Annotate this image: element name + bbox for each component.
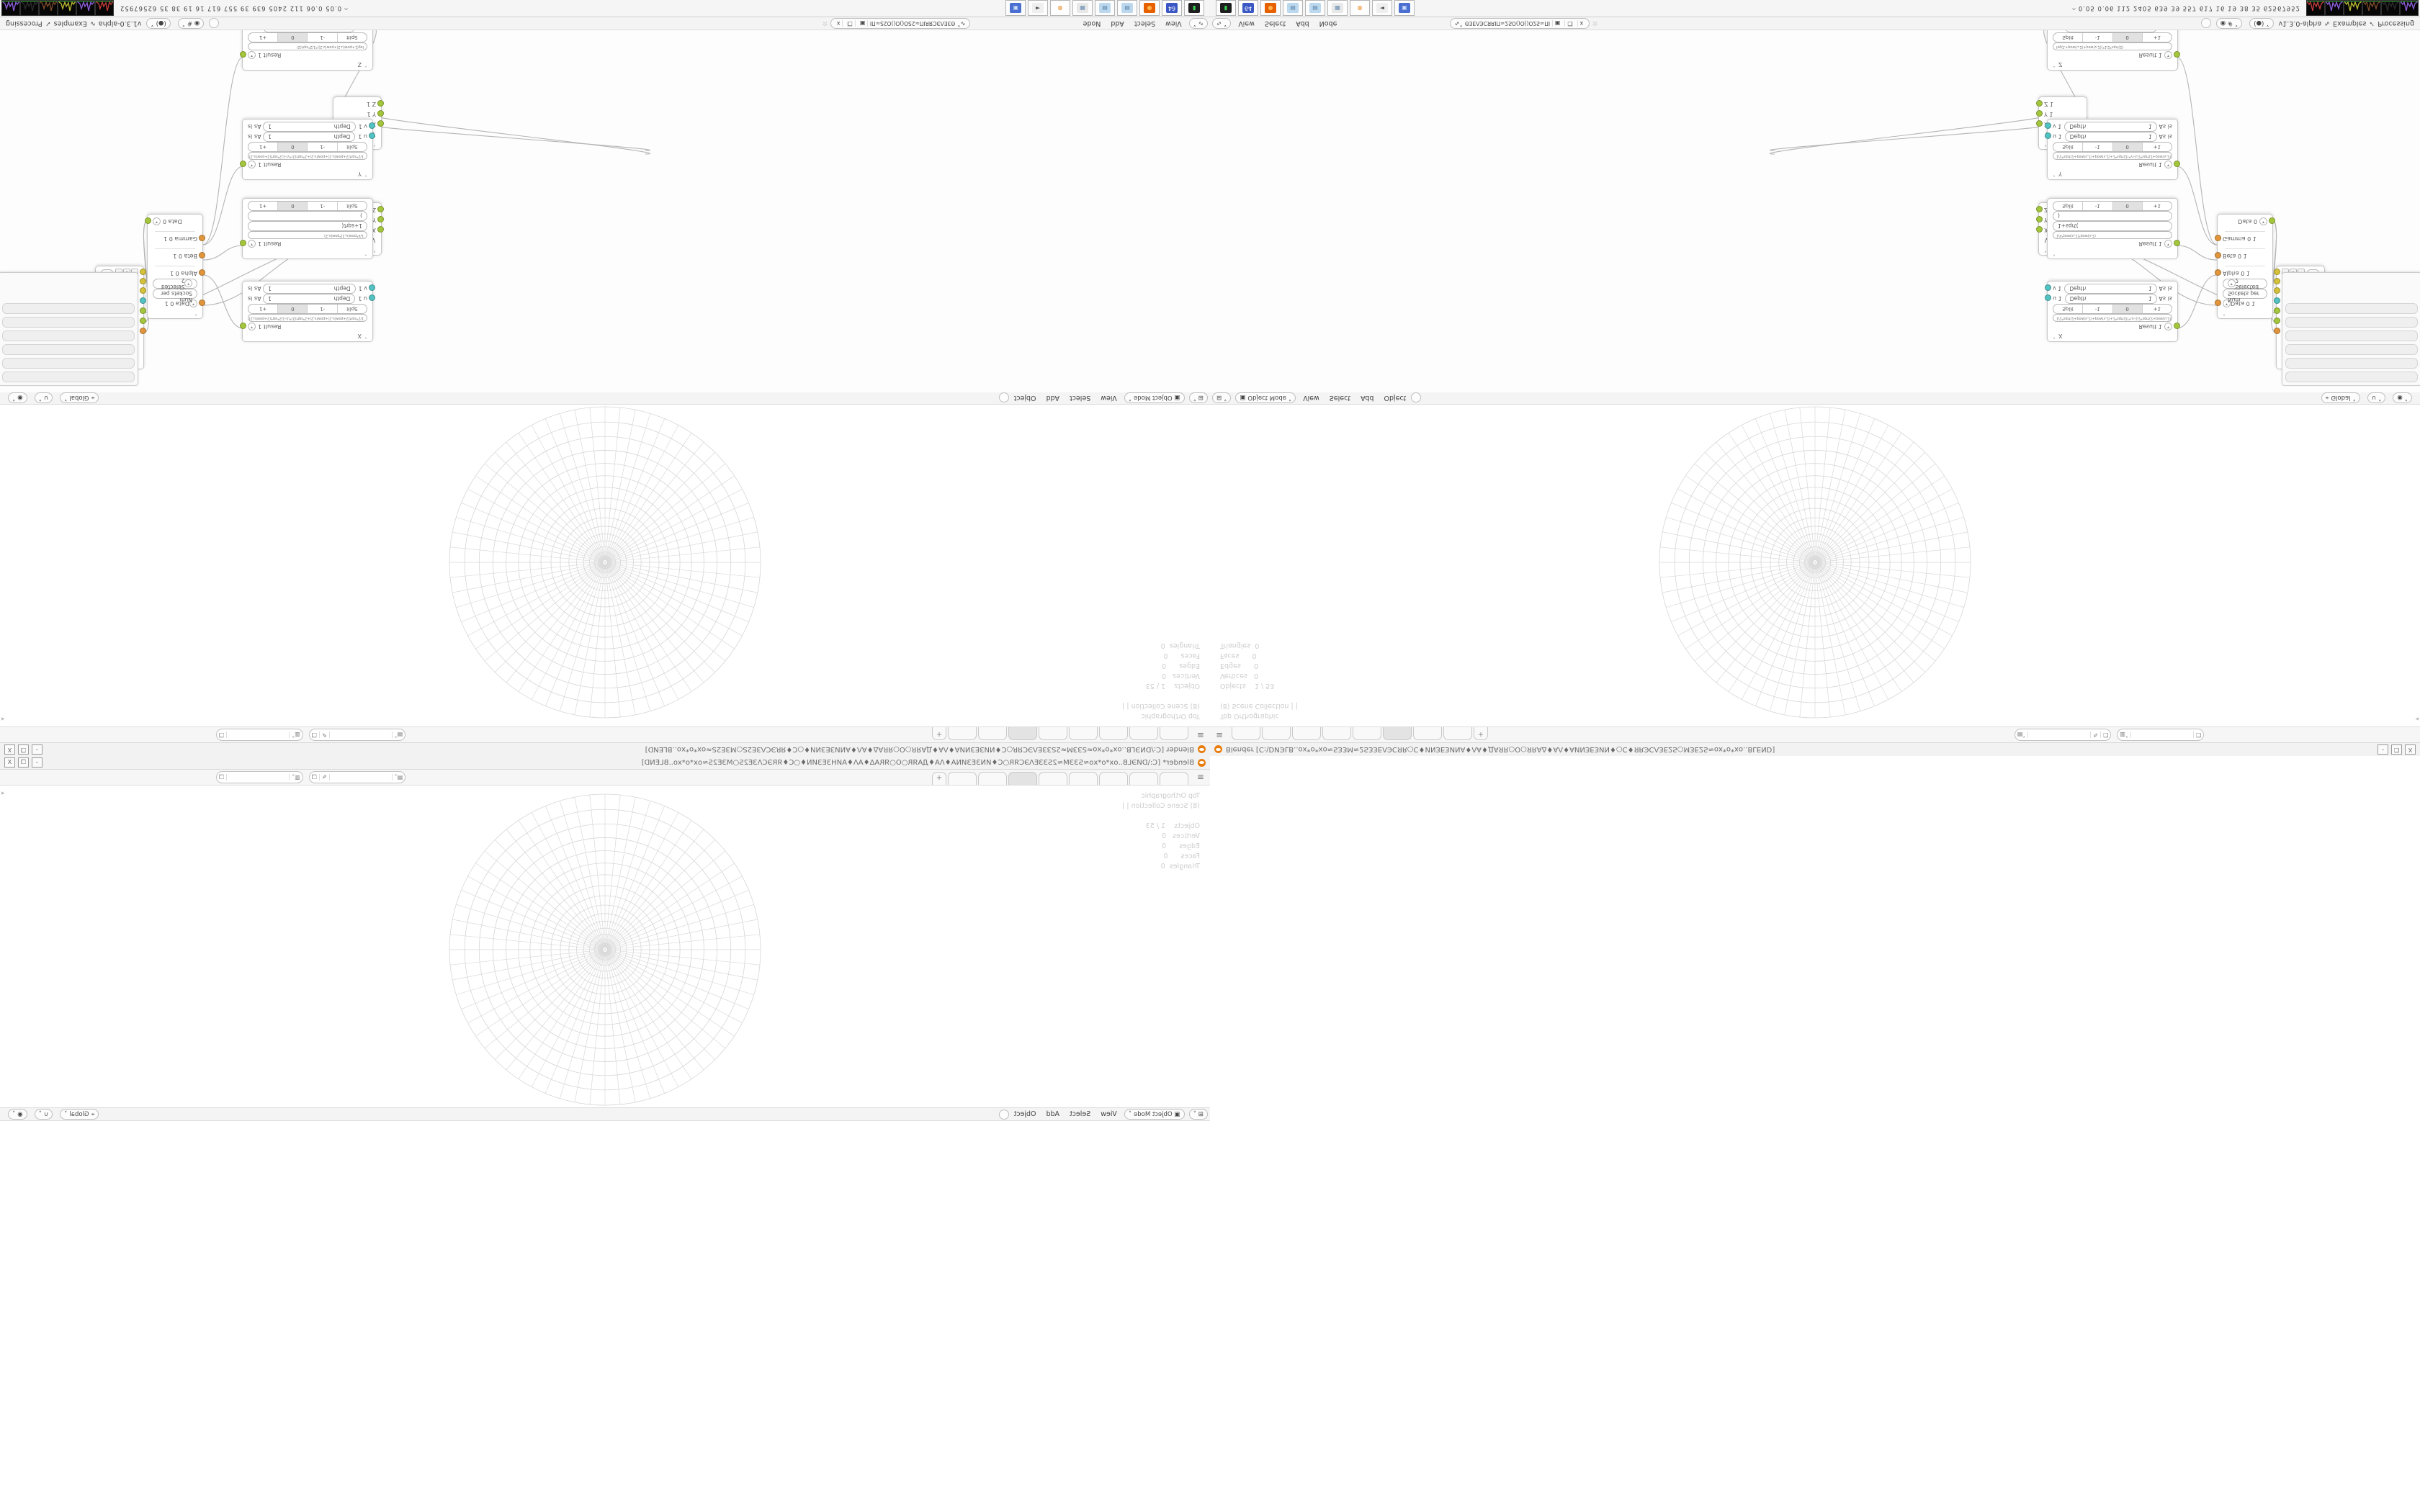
dropdown-icon[interactable]: ▾ xyxy=(2228,280,2236,288)
text-field[interactable]: 1+sqrt( xyxy=(2053,221,2172,231)
node-header[interactable]: ˅Z xyxy=(2048,60,2177,69)
node-editor-canvas[interactable]: ˅✎◉▦○○◇▽ B A K E◎Vertices 1px2Edges 1px1… xyxy=(0,30,1210,392)
taskbar-volume[interactable]: ◄ xyxy=(1372,0,1392,16)
text-field[interactable]: ▾Selected 2 xyxy=(2223,279,2267,289)
segment-split[interactable]: Split xyxy=(2053,202,2083,210)
socket-label: Result 1 xyxy=(258,162,281,168)
workspace-tab-6[interactable] xyxy=(1008,727,1037,740)
menu-select[interactable]: Select xyxy=(1070,1110,1090,1118)
scene-pin-icon[interactable]: ✎ xyxy=(320,774,330,780)
chevron-down-icon[interactable]: ˅ xyxy=(364,251,367,257)
chevron-down-icon[interactable]: ˅ xyxy=(2053,251,2056,257)
workspace-tab-1[interactable] xyxy=(1160,727,1188,740)
menu-select[interactable]: Select xyxy=(1330,394,1350,402)
taskbar-notepad[interactable]: ▤ xyxy=(1117,0,1137,16)
scene-copy-icon[interactable]: ❒ xyxy=(310,774,320,780)
socket-l[interactable] xyxy=(2036,121,2043,127)
tree-unlink-button[interactable]: x xyxy=(1577,20,1586,27)
add-workspace-button[interactable]: + xyxy=(932,727,946,740)
segmented-control[interactable]: Split-10+1 xyxy=(248,201,367,211)
socket-l[interactable] xyxy=(2215,253,2221,259)
socket-l[interactable] xyxy=(2045,133,2051,140)
segmented-control[interactable]: Split-10+1 xyxy=(248,32,367,42)
snap-toggle[interactable]: ∪˅ xyxy=(2367,392,2385,403)
segment--1[interactable]: -1 xyxy=(2083,202,2112,210)
scene-selector[interactable]: ▤˅✎❒ xyxy=(309,771,405,783)
n-panel-row-6[interactable] xyxy=(2285,303,2418,314)
segment--1[interactable]: -1 xyxy=(2083,305,2112,313)
segment-+1[interactable]: +1 xyxy=(248,305,277,313)
n-panel-row-1[interactable] xyxy=(2285,372,2418,382)
segment-+1[interactable]: +1 xyxy=(2143,305,2172,313)
socket-l[interactable] xyxy=(2215,300,2221,307)
menu-add[interactable]: Add xyxy=(1361,394,1373,402)
taskbar-volume[interactable]: ◄ xyxy=(1028,0,1048,16)
viewport-sidebar-collapse-icon[interactable]: ◂ xyxy=(2415,715,2419,722)
overlay-toggle-icon[interactable] xyxy=(2201,19,2211,29)
segment-split[interactable]: Split xyxy=(2053,143,2083,151)
tree-fake-user-button[interactable]: ▣ xyxy=(858,20,869,27)
chevron-down-icon[interactable]: ˅ xyxy=(194,310,197,317)
segmented-control[interactable]: Split-10+1 xyxy=(2053,201,2172,211)
tree-copy-button[interactable]: ❒ xyxy=(1564,20,1574,27)
orientation-selector[interactable]: ⌖Global˅ xyxy=(60,392,99,403)
menu-hamburger-icon[interactable]: ≡ xyxy=(1216,730,1223,740)
workspace-tab-4[interactable] xyxy=(1069,727,1098,740)
menu-hamburger-icon[interactable]: ≡ xyxy=(1197,730,1204,740)
workspace-tab-6[interactable] xyxy=(1008,772,1037,785)
socket-l[interactable] xyxy=(2045,123,2051,130)
segment-split[interactable]: Split xyxy=(2053,33,2083,42)
segment-split[interactable]: Split xyxy=(2053,305,2083,313)
view-layer-selector[interactable]: ▥˅❒ xyxy=(216,771,303,783)
depth-selector[interactable]: Depth1 xyxy=(2065,132,2157,142)
segment-split[interactable]: Split xyxy=(337,202,367,210)
node-tree-selector[interactable]: ∿˅ΘЗEΛЭСЯRIП≈2SO()O()O2S≈ПIЯRСЭΛЗEΘ▣❒x xyxy=(1450,18,1590,29)
workspace-tab-4[interactable] xyxy=(1322,727,1351,740)
examples-menu[interactable]: Examples xyxy=(54,19,87,27)
workspace-tab-3[interactable] xyxy=(1292,727,1321,740)
tray-chevron-icon[interactable]: ^ xyxy=(2071,5,2076,12)
n-panel-row-4[interactable] xyxy=(2285,330,2418,341)
socket-l[interactable] xyxy=(2036,101,2043,107)
socket-l[interactable] xyxy=(2045,295,2051,302)
node-formula-z[interactable]: ˅ZResult 1▾log(1+pow(u,2)+pow(v,2))*1/2*… xyxy=(242,30,373,71)
n-panel-row-3[interactable] xyxy=(2,344,135,355)
orientation-icon: ⌖ xyxy=(2326,395,2329,402)
node-formula-y[interactable]: ˅YResult 1▾1/2*sqrt(2+pow(u,2)+pow(v,2)+… xyxy=(2047,119,2178,180)
lasso-icon[interactable] xyxy=(1411,393,1421,403)
node-tree-selector[interactable]: ∿˅ΘЗEΛЭСЯRIП≈2SO()O()O2S≈ПIЯRСЭΛЗEΘ▣❒x xyxy=(830,18,970,29)
depth-selector[interactable]: Depth1 xyxy=(263,132,355,142)
segment-+1[interactable]: +1 xyxy=(248,143,277,151)
scene-name-field[interactable] xyxy=(330,772,392,783)
node-menu-view[interactable]: View xyxy=(1165,19,1182,27)
segment--1[interactable]: -1 xyxy=(308,305,337,313)
node-list-join[interactable]: ˅▾ Data 0 1Num Sockets per set 1▾Selecte… xyxy=(147,214,203,319)
node-header[interactable]: ˅Y xyxy=(243,170,372,179)
mode-selector[interactable]: ▣Object Mode˅ xyxy=(1124,1109,1185,1120)
node-formula-w[interactable]: ˅Result 1▾1/4*pow(u,2)*pow(v,2)1+sqrt()S… xyxy=(2047,198,2178,259)
mode-selector[interactable]: ▣Object Mode˅ xyxy=(1124,392,1185,403)
editor-type-selector[interactable]: ⊞˅ xyxy=(1189,1109,1208,1120)
node-menu-select[interactable]: Select xyxy=(1134,19,1155,27)
segment-split[interactable]: Split xyxy=(337,305,367,313)
segment-0[interactable]: 0 xyxy=(277,143,307,151)
segment-0[interactable]: 0 xyxy=(2113,33,2143,42)
socket-l[interactable] xyxy=(2274,328,2280,335)
scene-name-field[interactable] xyxy=(330,729,392,740)
socket-l[interactable] xyxy=(2045,285,2051,292)
text-field[interactable]: ) xyxy=(2053,211,2172,221)
taskbar-notepad-2[interactable]: ▤ xyxy=(1095,0,1115,16)
socket-l[interactable] xyxy=(2036,111,2043,117)
node-header[interactable]: ˅ xyxy=(2218,309,2272,318)
notepad-icon: ▤ xyxy=(1121,3,1133,13)
socket-l[interactable] xyxy=(2274,308,2280,315)
text-field[interactable]: 1+sqrt( xyxy=(248,221,367,231)
viewport-sidebar-collapse-icon[interactable]: ◂ xyxy=(1,715,5,722)
restore-button[interactable]: ❒ xyxy=(18,757,29,768)
lasso-icon[interactable] xyxy=(999,393,1009,403)
scene-name-field[interactable] xyxy=(2028,729,2090,740)
segment-0[interactable]: 0 xyxy=(277,305,307,313)
taskbar-notepad[interactable]: ▤ xyxy=(1283,0,1303,16)
view-layer-selector[interactable]: ▥˅❒ xyxy=(2117,729,2204,741)
n-panel[interactable] xyxy=(2282,272,2420,386)
node-options-toggle[interactable]: (●)˅ xyxy=(2249,18,2273,29)
dropdown-icon[interactable]: ▾ xyxy=(2164,161,2172,169)
taskbar-firefox[interactable]: ● xyxy=(1139,0,1160,16)
editor-type-selector[interactable]: ⊞˅ xyxy=(1212,392,1231,403)
node-header[interactable]: ˅Z xyxy=(243,60,372,69)
node-header[interactable]: ˅ xyxy=(148,309,202,318)
tree-pin-icon[interactable]: ☆ xyxy=(822,19,828,27)
dropdown-icon[interactable]: ▾ xyxy=(248,161,256,169)
workspace-tab-4[interactable] xyxy=(1069,772,1098,785)
socket-r[interactable] xyxy=(240,52,246,58)
socket-l[interactable] xyxy=(2274,298,2280,305)
depth-selector[interactable]: Depth1 xyxy=(263,284,356,294)
close-button[interactable]: X xyxy=(4,757,15,768)
chevron-down-icon[interactable]: ˅ xyxy=(2053,171,2056,178)
menu-object[interactable]: Object xyxy=(1014,394,1036,402)
segment-+1[interactable]: +1 xyxy=(2143,202,2172,210)
tree-pin-icon[interactable]: ☆ xyxy=(1592,19,1598,27)
node-header[interactable]: ˅ xyxy=(2048,249,2177,258)
n-panel-row-2[interactable] xyxy=(2285,358,2418,369)
viewport-3d[interactable]: Top Orthographic (8) Scene Collection | … xyxy=(0,786,1210,1107)
workspace-tab-2[interactable] xyxy=(1129,772,1158,785)
segment-0[interactable]: 0 xyxy=(277,33,307,42)
snap-toggle[interactable]: ∪˅ xyxy=(35,1109,53,1120)
segmented-control[interactable]: Split-10+1 xyxy=(248,142,367,152)
node-formula-y[interactable]: ˅YResult 1▾1/2*sqrt(2+pow(u,2)+pow(v,2)+… xyxy=(242,119,373,180)
dropdown-icon[interactable]: ▾ xyxy=(2164,52,2172,60)
taskbar-firefox[interactable]: ● xyxy=(1260,0,1281,16)
taskbar-media-player[interactable]: ▣ xyxy=(1005,0,1026,16)
segment-+1[interactable]: +1 xyxy=(248,202,277,210)
taskbar-blender[interactable]: ◍ xyxy=(1350,0,1370,16)
segment-+1[interactable]: +1 xyxy=(248,33,277,42)
socket-l[interactable] xyxy=(2036,207,2043,213)
segment--1[interactable]: -1 xyxy=(2083,143,2112,151)
workspace-tab-5[interactable] xyxy=(1353,727,1381,740)
depth-selector[interactable]: Depth1 xyxy=(2065,30,2157,32)
formula-field[interactable]: log(1+pow(u,2)+pow(v,2))*1/2*sqrt(2) xyxy=(2053,42,2172,50)
text-field[interactable]: Num Sockets per set 1 xyxy=(153,289,197,299)
n-panel-row-3[interactable] xyxy=(2285,344,2418,355)
taskbar-system-monitor[interactable]: ▮ xyxy=(1184,0,1204,16)
workspace-tab-8[interactable] xyxy=(948,772,977,785)
segment-0[interactable]: 0 xyxy=(2113,143,2143,151)
node-snap-toggle[interactable]: ◉ #˅ xyxy=(178,18,205,29)
node-options-toggle[interactable]: (●)˅ xyxy=(146,18,170,29)
node-menu-add[interactable]: Add xyxy=(1296,19,1309,27)
socket-l[interactable] xyxy=(2274,269,2280,276)
segment-0[interactable]: 0 xyxy=(277,202,307,210)
close-button[interactable]: X xyxy=(4,744,15,755)
formula-field[interactable]: 1/2*sqrt(2+pow(u,2)+pow(v,2)+2*sqrt(2)*v… xyxy=(2053,152,2172,160)
n-panel-row-2[interactable] xyxy=(2,358,135,369)
lasso-icon[interactable] xyxy=(999,1110,1009,1120)
n-panel-row-1[interactable] xyxy=(2,372,135,382)
node-formula-x[interactable]: ˅XResult 1▾1/2*sqrt(2+pow(u,2)+pow(v,2)+… xyxy=(2047,281,2178,342)
socket-l[interactable] xyxy=(2036,217,2043,223)
segment--1[interactable]: -1 xyxy=(308,202,337,210)
segment-+1[interactable]: +1 xyxy=(2143,33,2172,42)
orientation-selector[interactable]: ⌖Global˅ xyxy=(60,1109,99,1120)
examples-menu[interactable]: Examples xyxy=(2333,19,2366,27)
chevron-down-icon[interactable]: ˅ xyxy=(2223,310,2226,317)
depth-selector[interactable]: Depth1 xyxy=(263,30,355,32)
chevron-down-icon[interactable]: ˅ xyxy=(364,171,367,178)
scene-selector[interactable]: ▤˅✎❒ xyxy=(2015,729,2111,741)
chevron-down-icon[interactable]: ˅ xyxy=(2053,62,2056,68)
blender-window-top-left: Blender [C:\DИЭLB..ох*о*хо≈SЗЗM≈2SЗЗEΛЭС… xyxy=(0,0,1210,756)
taskbar-media-player[interactable]: ▣ xyxy=(1394,0,1415,16)
formula-field[interactable]: 1/4*pow(u,2)*pow(v,2) xyxy=(2053,231,2172,239)
menu-select[interactable]: Select xyxy=(1070,394,1090,402)
segment--1[interactable]: -1 xyxy=(308,143,337,151)
segment-+1[interactable]: +1 xyxy=(2143,143,2172,151)
socket-r[interactable] xyxy=(240,240,246,247)
node-menu-node[interactable]: Node xyxy=(1319,19,1337,27)
dropdown-icon[interactable]: ▾ xyxy=(185,280,193,288)
workspace-tab-6[interactable] xyxy=(1383,727,1412,740)
scene-copy-icon[interactable]: ❒ xyxy=(2100,732,2110,738)
socket-l[interactable] xyxy=(2274,288,2280,294)
text-field[interactable]: ▾Selected 2 xyxy=(153,279,197,289)
n-panel-row-5[interactable] xyxy=(2285,317,2418,328)
workspace-tab-5[interactable] xyxy=(1039,727,1067,740)
menu-view[interactable]: View xyxy=(1303,394,1319,402)
workspace-tab-2[interactable] xyxy=(1262,727,1291,740)
node-header[interactable]: ˅ xyxy=(243,249,372,258)
editor-type-selector[interactable]: ⊞˅ xyxy=(1189,392,1208,403)
workspace-tab-7[interactable] xyxy=(978,772,1007,785)
menu-view[interactable]: View xyxy=(1101,1110,1117,1118)
depth-selector[interactable]: Depth1 xyxy=(263,122,356,132)
workspace-tab-2[interactable] xyxy=(1129,727,1158,740)
menu-object[interactable]: Object xyxy=(1014,1110,1036,1118)
depth-selector[interactable]: Depth1 xyxy=(2064,284,2157,294)
node-menu-node[interactable]: Node xyxy=(1083,19,1101,27)
workspace-tab-8[interactable] xyxy=(1443,727,1472,740)
minimize-button[interactable]: – xyxy=(2378,744,2388,755)
proportional-edit-toggle[interactable]: ◉˅ xyxy=(8,1109,27,1120)
depth-selector[interactable]: Depth1 xyxy=(2064,122,2157,132)
socket-l[interactable] xyxy=(2036,227,2043,233)
add-workspace-button[interactable]: + xyxy=(932,772,946,785)
dropdown-icon[interactable]: ▾ xyxy=(248,240,256,248)
node-snap-toggle[interactable]: ◉ #˅ xyxy=(2216,18,2243,29)
node-formula-w[interactable]: ˅Result 1▾1/4*pow(u,2)*pow(v,2)1+sqrt()S… xyxy=(242,198,373,259)
tray-chevron-icon[interactable]: ^ xyxy=(344,5,349,12)
restore-button[interactable]: ❒ xyxy=(18,744,29,755)
segment-0[interactable]: 0 xyxy=(2113,202,2143,210)
menu-view[interactable]: View xyxy=(1101,394,1117,402)
depth-selector[interactable]: Depth1 xyxy=(263,294,355,304)
dropdown-icon[interactable]: ▾ xyxy=(153,218,161,226)
chevron-down-icon[interactable]: ˅ xyxy=(364,62,367,68)
scene-copy-icon[interactable]: ❒ xyxy=(310,732,320,738)
socket-r[interactable] xyxy=(240,323,246,330)
workspace-tab-8[interactable] xyxy=(948,727,977,740)
segment-0[interactable]: 0 xyxy=(2113,305,2143,313)
menu-hamburger-icon[interactable]: ≡ xyxy=(1197,772,1204,782)
tree-copy-button[interactable]: ❒ xyxy=(845,20,855,27)
node-header[interactable]: ˅X xyxy=(2048,332,2177,341)
chevron-down-icon[interactable]: ˅ xyxy=(2053,333,2056,340)
socket-r[interactable] xyxy=(145,218,151,225)
node-header[interactable]: ˅Y xyxy=(2048,170,2177,179)
depth-selector[interactable]: Depth1 xyxy=(2065,294,2157,304)
view-layer-copy-icon[interactable]: ❒ xyxy=(217,774,227,780)
mode-selector[interactable]: ▣Object Mode˅ xyxy=(1235,392,1296,403)
taskbar-image-viewer[interactable]: ▦ xyxy=(1072,0,1093,16)
segment--1[interactable]: -1 xyxy=(2083,33,2112,42)
node-editor-type-selector[interactable]: ∿˅ xyxy=(1189,18,1208,29)
segmented-control[interactable]: Split-10+1 xyxy=(2053,32,2172,42)
dropdown-icon[interactable]: ▾ xyxy=(248,52,256,60)
taskbar-image-viewer[interactable]: ▦ xyxy=(1327,0,1348,16)
formula-field[interactable]: 1/2*sqrt(2+pow(u,2)+pow(v,2)+2*sqrt(2)*u… xyxy=(2053,314,2172,322)
n-panel[interactable] xyxy=(0,272,138,386)
formula-field[interactable]: 1/4*pow(u,2)*pow(v,2) xyxy=(248,231,367,239)
view-layer-field[interactable] xyxy=(227,729,289,740)
workspace-tab-7[interactable] xyxy=(978,727,1007,740)
menu-object[interactable]: Object xyxy=(1384,394,1406,402)
node-menu-select[interactable]: Select xyxy=(1265,19,1286,27)
segmented-control[interactable]: Split-10+1 xyxy=(2053,142,2172,152)
n-panel-row-6[interactable] xyxy=(2,303,135,314)
minimize-button[interactable]: – xyxy=(32,757,42,768)
socket-l[interactable] xyxy=(2274,318,2280,325)
taskbar-system-monitor[interactable]: ▮ xyxy=(1216,0,1236,16)
close-button[interactable]: X xyxy=(2405,744,2416,755)
formula-field[interactable]: 1/2*sqrt(2+pow(u,2)+pow(v,2)+2*sqrt(2)*u… xyxy=(248,314,367,322)
workspace-tab-5[interactable] xyxy=(1039,772,1067,785)
tree-fake-user-button[interactable]: ▣ xyxy=(1552,20,1563,27)
socket-r[interactable] xyxy=(240,161,246,168)
scene-selector[interactable]: ▤˅✎❒ xyxy=(309,729,405,741)
dropdown-icon[interactable]: ▾ xyxy=(2259,218,2267,226)
viewport-3d[interactable]: Top Orthographic (8) Scene Collection | … xyxy=(0,405,1210,726)
workspace-tab-1[interactable] xyxy=(1160,772,1188,785)
workspace-tab-3[interactable] xyxy=(1099,772,1128,785)
chevron-down-icon[interactable]: ˅ xyxy=(364,333,367,340)
restore-button[interactable]: ❒ xyxy=(2391,744,2402,755)
text-field[interactable]: ) xyxy=(248,211,367,221)
view-layer-copy-icon[interactable]: ❒ xyxy=(2193,732,2203,738)
taskbar-setup-disk[interactable]: 64 xyxy=(1162,0,1182,16)
socket-l[interactable] xyxy=(2215,270,2221,276)
n-panel-row-5[interactable] xyxy=(2,317,135,328)
formula-field[interactable]: log(1+pow(u,2)+pow(v,2))*1/2*sqrt(2) xyxy=(248,42,367,50)
menu-add[interactable]: Add xyxy=(1047,394,1059,402)
scene-pin-icon[interactable]: ✎ xyxy=(2090,732,2100,738)
view-layer-field[interactable] xyxy=(2131,729,2193,740)
orientation-selector[interactable]: ⌖Global˅ xyxy=(2321,392,2360,403)
segmented-control[interactable]: Split-10+1 xyxy=(248,304,367,314)
node-menu-add[interactable]: Add xyxy=(1111,19,1124,27)
overlay-toggle-icon[interactable] xyxy=(209,19,219,29)
formula-field[interactable]: 1/2*sqrt(2+pow(u,2)+pow(v,2)+2*sqrt(2)*v… xyxy=(248,152,367,160)
tree-unlink-button[interactable]: x xyxy=(835,20,843,27)
node-editor-type-selector[interactable]: ∿˅ xyxy=(1212,18,1231,29)
dropdown-icon[interactable]: ▾ xyxy=(2164,240,2172,248)
view-layer-selector[interactable]: ▥˅❒ xyxy=(216,729,303,741)
view-layer-field[interactable] xyxy=(227,772,289,783)
node-header[interactable]: ˅X xyxy=(243,332,372,341)
minimize-button[interactable]: – xyxy=(32,744,42,755)
segment-split[interactable]: Split xyxy=(337,33,367,42)
dropdown-icon[interactable]: ▾ xyxy=(2164,323,2172,331)
chevron-down-icon[interactable]: ˅ xyxy=(373,247,376,253)
node-editor-canvas[interactable]: ˅✎◉▦○○◇▽ B A K E◎Vertices 1px2Edges 1px1… xyxy=(1210,30,2420,392)
segmented-control[interactable]: Split-10+1 xyxy=(2053,304,2172,314)
viewport-sidebar-collapse-icon[interactable]: ◂ xyxy=(1,790,5,797)
segment--1[interactable]: -1 xyxy=(308,33,337,42)
workspace-tab-3[interactable] xyxy=(1099,727,1128,740)
taskbar-setup-disk[interactable]: 64 xyxy=(1238,0,1258,16)
node-formula-x[interactable]: ˅XResult 1▾1/2*sqrt(2+pow(u,2)+pow(v,2)+… xyxy=(242,281,373,342)
proportional-edit-toggle[interactable]: ◉˅ xyxy=(2393,392,2412,403)
socket-l[interactable] xyxy=(2274,279,2280,285)
node-formula-z[interactable]: ˅ZResult 1▾log(1+pow(u,2)+pow(v,2))*1/2*… xyxy=(2047,30,2178,71)
snap-toggle[interactable]: ∪˅ xyxy=(35,392,53,403)
taskbar-blender[interactable]: ◍ xyxy=(1050,0,1070,16)
workspace-tab-7[interactable] xyxy=(1413,727,1442,740)
text-field[interactable]: Num Sockets per set 1 xyxy=(2223,289,2267,299)
scene-pin-icon[interactable]: ✎ xyxy=(320,732,330,738)
viewport-3d[interactable]: Top Orthographic (8) Scene Collection | … xyxy=(1210,405,2420,726)
dropdown-icon[interactable]: ▾ xyxy=(248,323,256,331)
add-workspace-button[interactable]: + xyxy=(1474,727,1488,740)
view-layer-copy-icon[interactable]: ❒ xyxy=(217,732,227,738)
workspace-tab-1[interactable] xyxy=(1232,727,1260,740)
segment-split[interactable]: Split xyxy=(337,143,367,151)
node-list-join[interactable]: ˅▾ Data 0 1Num Sockets per set 1▾Selecte… xyxy=(2217,214,2273,319)
node-menu-view[interactable]: View xyxy=(1238,19,1255,27)
proportional-edit-toggle[interactable]: ◉˅ xyxy=(8,392,27,403)
taskbar-notepad-2[interactable]: ▤ xyxy=(1305,0,1325,16)
n-panel-row-4[interactable] xyxy=(2,330,135,341)
socket-l[interactable] xyxy=(2215,235,2221,242)
menu-add[interactable]: Add xyxy=(1047,1110,1059,1118)
chevron-down-icon[interactable]: ˅ xyxy=(373,141,376,148)
